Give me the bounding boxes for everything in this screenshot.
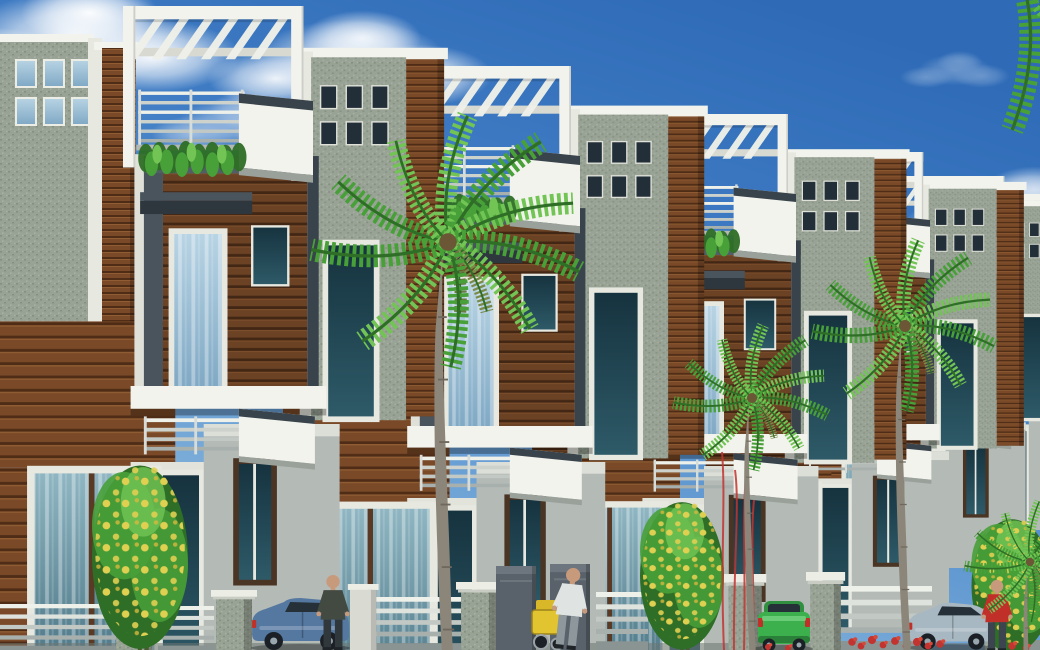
scene-canvas xyxy=(0,0,1040,650)
tower-trim xyxy=(88,38,102,334)
stone-pillar-5 xyxy=(806,572,845,650)
tower-coping xyxy=(0,34,94,43)
white-pillar-1 xyxy=(348,584,379,650)
stone-pillar-3 xyxy=(456,582,502,650)
stone-pillar-2 xyxy=(211,590,257,650)
villa-0-partial xyxy=(0,34,138,344)
gate-1 xyxy=(496,566,536,650)
architectural-rendering xyxy=(0,0,1040,650)
